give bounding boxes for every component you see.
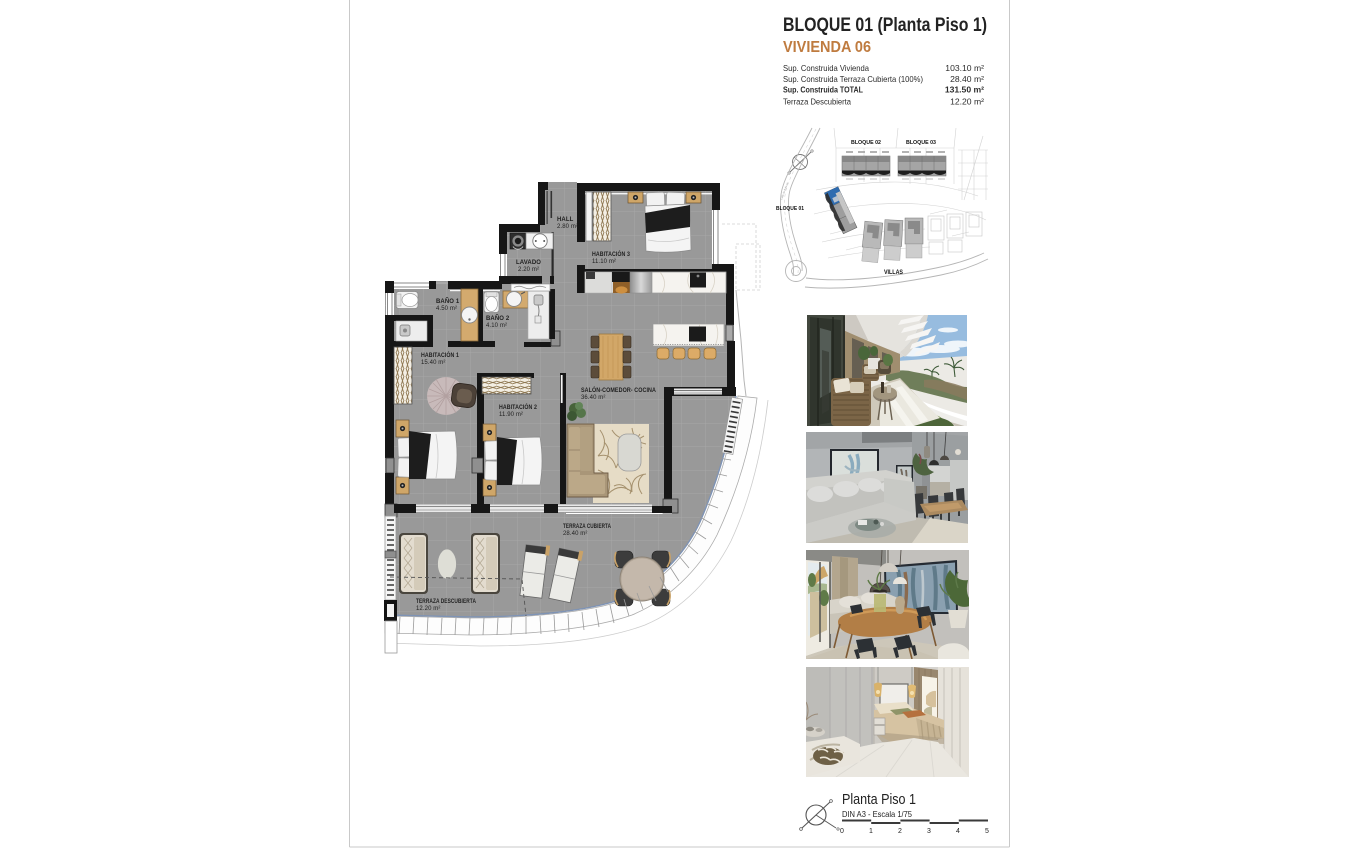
svg-text:Planta Piso 1: Planta Piso 1 [842, 792, 916, 808]
svg-text:4: 4 [956, 828, 960, 835]
svg-text:Terraza Descubierta: Terraza Descubierta [783, 97, 851, 107]
svg-text:36.40 m²: 36.40 m² [581, 395, 605, 401]
svg-text:DIN A3 - Escala 1/75: DIN A3 - Escala 1/75 [842, 809, 912, 819]
svg-text:BAÑO 2: BAÑO 2 [486, 315, 510, 322]
svg-text:0: 0 [840, 828, 844, 835]
svg-text:HALL: HALL [557, 217, 574, 223]
svg-text:HABITACIÓN 1: HABITACIÓN 1 [421, 351, 459, 359]
svg-text:12.20 m²: 12.20 m² [416, 606, 440, 612]
svg-text:BLOQUE 01 (Planta Piso 1): BLOQUE 01 (Planta Piso 1) [783, 14, 987, 36]
svg-text:VIVIENDA 06: VIVIENDA 06 [783, 39, 871, 56]
svg-text:131.50 m²: 131.50 m² [945, 85, 984, 95]
svg-text:12.20 m²: 12.20 m² [950, 97, 984, 107]
svg-text:2: 2 [898, 828, 902, 835]
svg-text:Sup. Construida Vivienda: Sup. Construida Vivienda [783, 63, 869, 73]
svg-text:TERRAZA CUBIERTA: TERRAZA CUBIERTA [563, 524, 611, 530]
svg-text:1: 1 [869, 828, 873, 835]
svg-text:HABITACIÓN 2: HABITACIÓN 2 [499, 403, 537, 411]
svg-text:BAÑO 1: BAÑO 1 [436, 298, 460, 305]
svg-text:TERRAZA DESCUBIERTA: TERRAZA DESCUBIERTA [416, 599, 476, 605]
svg-text:11.10 m²: 11.10 m² [592, 259, 616, 265]
svg-text:28.40 m²: 28.40 m² [563, 531, 587, 537]
svg-text:HABITACIÓN 3: HABITACIÓN 3 [592, 250, 630, 258]
svg-text:28.40 m²: 28.40 m² [950, 74, 984, 84]
svg-text:BLOQUE 03: BLOQUE 03 [906, 140, 936, 146]
svg-text:Sup. Construida TOTAL: Sup. Construida TOTAL [783, 85, 863, 95]
svg-text:2.80 m²: 2.80 m² [557, 224, 578, 230]
svg-text:4.50 m²: 4.50 m² [436, 306, 457, 312]
svg-text:2.20 m²: 2.20 m² [518, 267, 539, 273]
svg-text:Sup. Construida Terraza Cubier: Sup. Construida Terraza Cubierta (100%) [783, 74, 923, 84]
svg-text:BLOQUE 02: BLOQUE 02 [851, 140, 881, 146]
svg-text:15.40 m²: 15.40 m² [421, 360, 445, 366]
svg-text:103.10 m²: 103.10 m² [945, 63, 984, 73]
svg-text:5: 5 [985, 828, 989, 835]
svg-text:VILLAS: VILLAS [884, 269, 904, 276]
svg-text:BLOQUE 01: BLOQUE 01 [776, 206, 804, 212]
svg-text:3: 3 [927, 828, 931, 835]
svg-text:LAVADO: LAVADO [516, 260, 541, 266]
svg-text:11.90 m²: 11.90 m² [499, 412, 523, 418]
svg-text:SALÓN-COMEDOR- COCINA: SALÓN-COMEDOR- COCINA [581, 386, 657, 394]
svg-text:4.10 m²: 4.10 m² [486, 323, 507, 329]
